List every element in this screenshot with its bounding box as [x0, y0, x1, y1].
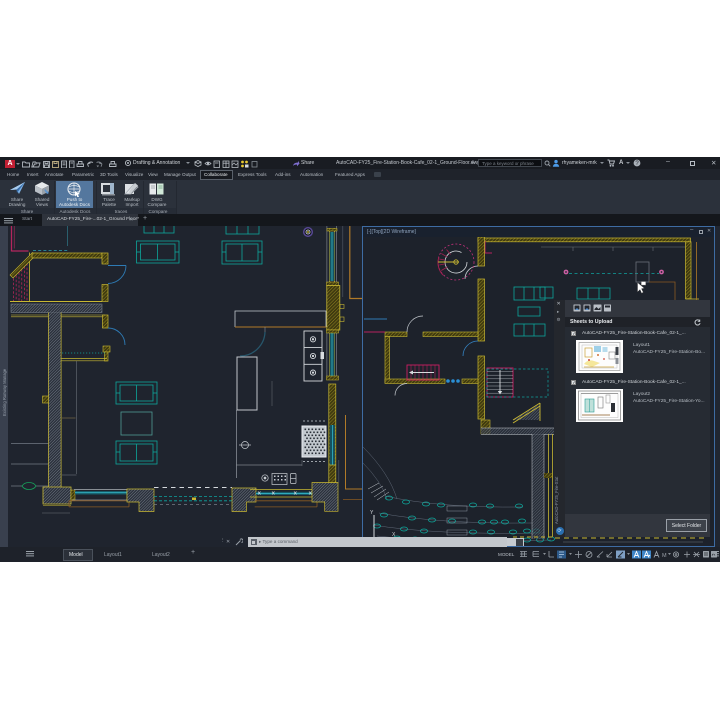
svg-text:Existing Runway Manage: Existing Runway Manage: [2, 368, 7, 416]
svg-text:M: M: [662, 553, 667, 559]
